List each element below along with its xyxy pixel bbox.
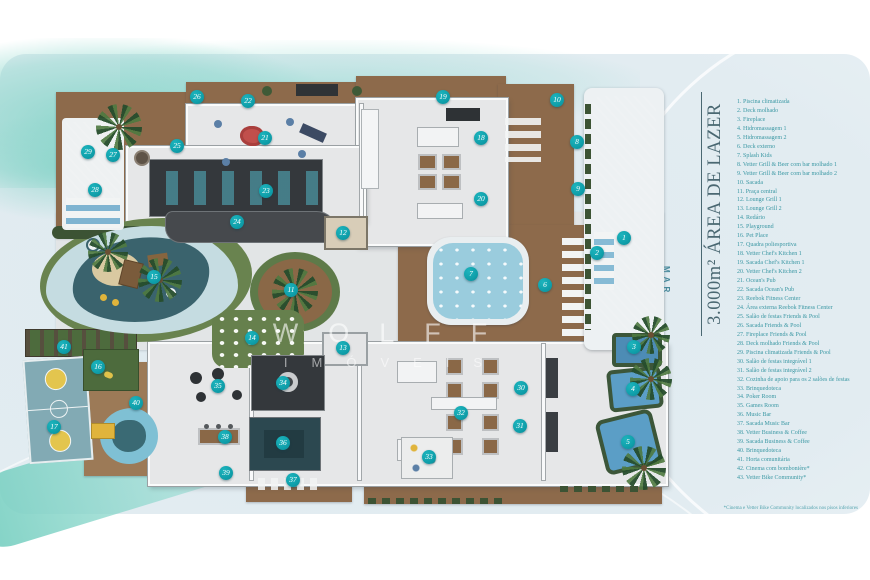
plan-marker-35: 35 bbox=[211, 379, 225, 393]
plan-marker-38: 38 bbox=[218, 430, 232, 444]
plan-marker-16: 16 bbox=[91, 360, 105, 374]
legend-item: 10. Sacada bbox=[737, 179, 863, 188]
legend-item: 23. Reebok Fitness Center bbox=[737, 295, 863, 304]
plan-marker-29: 29 bbox=[81, 145, 95, 159]
legend-item: 37. Sacada Music Bar bbox=[737, 420, 863, 429]
legend-item: 16. Pet Place bbox=[737, 232, 863, 241]
plan-marker-11: 11 bbox=[284, 283, 298, 297]
legend-item: 24. Área externa Reebok Fitness Center bbox=[737, 304, 863, 313]
plan-marker-18: 18 bbox=[474, 131, 488, 145]
legend-item: 13. Lounge Grill 2 bbox=[737, 205, 863, 214]
plan-marker-14: 14 bbox=[245, 331, 259, 345]
plan-marker-8: 8 bbox=[570, 135, 584, 149]
legend-item: 18. Vetter Chef's Kitchen 1 bbox=[737, 250, 863, 259]
legend-item: 4. Hidromassagem 1 bbox=[737, 125, 863, 134]
legend-item: 11. Praça central bbox=[737, 188, 863, 197]
legend-item: 21. Ocean's Pub bbox=[737, 277, 863, 286]
legend-item: 19. Sacada Chef's Kitchen 1 bbox=[737, 259, 863, 268]
plan-marker-34: 34 bbox=[276, 376, 290, 390]
plan-marker-36: 36 bbox=[276, 436, 290, 450]
plan-marker-6: 6 bbox=[538, 278, 552, 292]
legend-item: 15. Playground bbox=[737, 223, 863, 232]
legend: 1. Piscina climatizada2. Deck molhado3. … bbox=[737, 98, 863, 483]
legend-item: 31. Salão de festas integrável 2 bbox=[737, 367, 863, 376]
plan-marker-5: 5 bbox=[621, 435, 635, 449]
plan-marker-12: 12 bbox=[336, 226, 350, 240]
legend-item: 3. Fireplace bbox=[737, 116, 863, 125]
legend-item: 6. Deck externo bbox=[737, 143, 863, 152]
legend-item: 1. Piscina climatizada bbox=[737, 98, 863, 107]
plan-marker-41: 41 bbox=[57, 340, 71, 354]
plan-marker-21: 21 bbox=[258, 131, 272, 145]
legend-item: 39. Sacada Business & Coffee bbox=[737, 438, 863, 447]
leisure-area-poster: 1234567891011121314151617181920212223242… bbox=[0, 0, 870, 580]
legend-item: 43. Vetter Bike Community* bbox=[737, 474, 863, 483]
legend-item: 7. Splash Kids bbox=[737, 152, 863, 161]
legend-item: 25. Salão de festas Friends & Pool bbox=[737, 313, 863, 322]
plan-marker-33: 33 bbox=[422, 450, 436, 464]
page-title: 3.000m² ÁREA DE LAZER bbox=[701, 92, 731, 336]
plan-marker-20: 20 bbox=[474, 192, 488, 206]
legend-item: 12. Lounge Grill 1 bbox=[737, 196, 863, 205]
legend-item: 29. Piscina climatizada Friends & Pool bbox=[737, 349, 863, 358]
legend-item: 42. Cinema com bombonière* bbox=[737, 465, 863, 474]
plan-marker-39: 39 bbox=[219, 466, 233, 480]
plan-marker-2: 2 bbox=[590, 246, 604, 260]
plan-marker-31: 31 bbox=[513, 419, 527, 433]
legend-item: 28. Deck molhado Friends & Pool bbox=[737, 340, 863, 349]
plan-marker-30: 30 bbox=[514, 381, 528, 395]
legend-footnote: *Cinema e Vetter Bike Community localiza… bbox=[700, 506, 858, 511]
legend-item: 9. Vetter Grill & Beer com bar molhado 2 bbox=[737, 170, 863, 179]
plan-marker-3: 3 bbox=[627, 340, 641, 354]
plan-marker-23: 23 bbox=[259, 184, 273, 198]
legend-item: 33. Brinquedoteca bbox=[737, 385, 863, 394]
legend-item: 5. Hidromassagem 2 bbox=[737, 134, 863, 143]
legend-item: 38. Vetter Business & Coffee bbox=[737, 429, 863, 438]
plan-marker-28: 28 bbox=[88, 183, 102, 197]
legend-item: 27. Fireplace Friends & Pool bbox=[737, 331, 863, 340]
plan-marker-1: 1 bbox=[617, 231, 631, 245]
legend-item: 32. Cozinha de apoio para os 2 salões de… bbox=[737, 376, 863, 385]
legend-item: 2. Deck molhado bbox=[737, 107, 863, 116]
plan-marker-25: 25 bbox=[170, 139, 184, 153]
legend-item: 14. Redário bbox=[737, 214, 863, 223]
legend-item: 26. Sacada Friends & Pool bbox=[737, 322, 863, 331]
plan-marker-10: 10 bbox=[550, 93, 564, 107]
plan-marker-26: 26 bbox=[190, 90, 204, 104]
legend-item: 17. Quadra poliesportiva bbox=[737, 241, 863, 250]
legend-list: 1. Piscina climatizada2. Deck molhado3. … bbox=[737, 98, 863, 483]
sea-label: MAR bbox=[662, 266, 671, 296]
plan-marker-22: 22 bbox=[241, 94, 255, 108]
plan-marker-27: 27 bbox=[106, 148, 120, 162]
plan-marker-37: 37 bbox=[286, 473, 300, 487]
plan-marker-24: 24 bbox=[230, 215, 244, 229]
legend-item: 20. Vetter Chef's Kitchen 2 bbox=[737, 268, 863, 277]
plan-marker-19: 19 bbox=[436, 90, 450, 104]
plan-marker-13: 13 bbox=[336, 341, 350, 355]
plan-marker-40: 40 bbox=[129, 396, 143, 410]
legend-item: 30. Salão de festas integrável 1 bbox=[737, 358, 863, 367]
plan-marker-32: 32 bbox=[454, 406, 468, 420]
plan-marker-7: 7 bbox=[464, 267, 478, 281]
plan-marker-15: 15 bbox=[147, 270, 161, 284]
plan-marker-17: 17 bbox=[47, 420, 61, 434]
plan-marker-9: 9 bbox=[571, 182, 585, 196]
legend-item: 22. Sacada Ocean's Pub bbox=[737, 286, 863, 295]
legend-item: 40. Brinquedoteca bbox=[737, 447, 863, 456]
legend-item: 34. Poker Room bbox=[737, 393, 863, 402]
legend-item: 35. Games Room bbox=[737, 402, 863, 411]
legend-item: 8. Vetter Grill & Beer com bar molhado 1 bbox=[737, 161, 863, 170]
legend-item: 41. Horta comunitária bbox=[737, 456, 863, 465]
plan-marker-4: 4 bbox=[626, 382, 640, 396]
legend-item: 36. Music Bar bbox=[737, 411, 863, 420]
